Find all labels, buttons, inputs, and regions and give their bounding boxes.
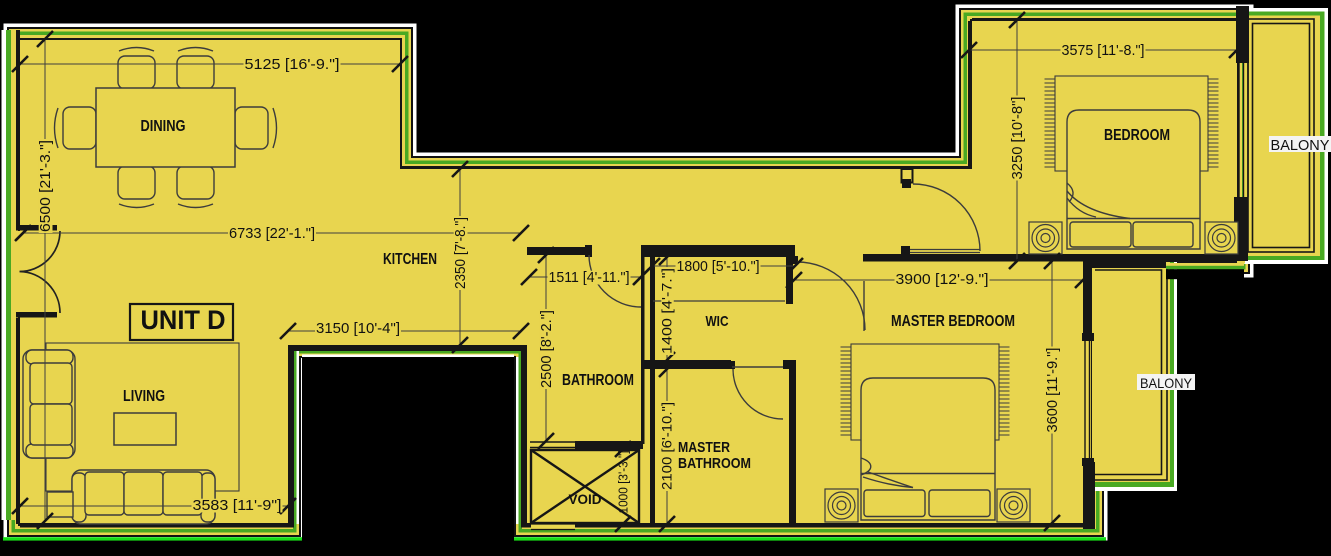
svg-text:BATHROOM: BATHROOM [562, 372, 634, 389]
svg-text:2100 [6'-10."]: 2100 [6'-10."] [659, 402, 674, 490]
svg-text:2350 [7'-8."]: 2350 [7'-8."] [452, 217, 469, 289]
svg-text:BALONY: BALONY [1140, 376, 1192, 391]
svg-text:1511 [4'-11."]: 1511 [4'-11."] [549, 269, 630, 286]
svg-text:BATHROOM: BATHROOM [678, 455, 751, 472]
svg-text:BALONY: BALONY [1271, 138, 1330, 154]
svg-text:3250 [10'-8"]: 3250 [10'-8"] [1009, 97, 1026, 180]
svg-text:6500 [21'-3."]: 6500 [21'-3."] [37, 140, 54, 232]
svg-text:1800 [5'-10."]: 1800 [5'-10."] [677, 258, 760, 275]
svg-text:MASTER BEDROOM: MASTER BEDROOM [891, 313, 1015, 330]
svg-text:3575 [11'-8."]: 3575 [11'-8."] [1062, 42, 1145, 59]
svg-text:3900 [12'-9."]: 3900 [12'-9."] [896, 271, 989, 288]
svg-text:3150 [10'-4"]: 3150 [10'-4"] [316, 320, 400, 337]
svg-text:2500 [8'-2."]: 2500 [8'-2."] [538, 310, 555, 388]
svg-text:5125 [16'-9."]: 5125 [16'-9."] [245, 56, 340, 73]
svg-text:WIC: WIC [706, 313, 729, 330]
svg-text:3600 [11'-9."]: 3600 [11'-9."] [1044, 348, 1061, 433]
svg-text:1000 [3'-3."]: 1000 [3'-3."] [615, 451, 630, 514]
svg-text:UNIT D: UNIT D [141, 305, 226, 335]
svg-text:BEDROOM: BEDROOM [1104, 127, 1170, 144]
svg-text:1400 [4'-7."]: 1400 [4'-7."] [659, 268, 674, 354]
svg-text:VOID: VOID [569, 491, 602, 507]
svg-text:KITCHEN: KITCHEN [383, 251, 437, 268]
svg-text:MASTER: MASTER [678, 439, 730, 456]
svg-text:6733 [22'-1."]: 6733 [22'-1."] [229, 225, 315, 242]
svg-text:DINING: DINING [141, 118, 186, 135]
svg-text:3583 [11'-9"]: 3583 [11'-9"] [193, 497, 282, 514]
svg-text:LIVING: LIVING [123, 388, 165, 405]
